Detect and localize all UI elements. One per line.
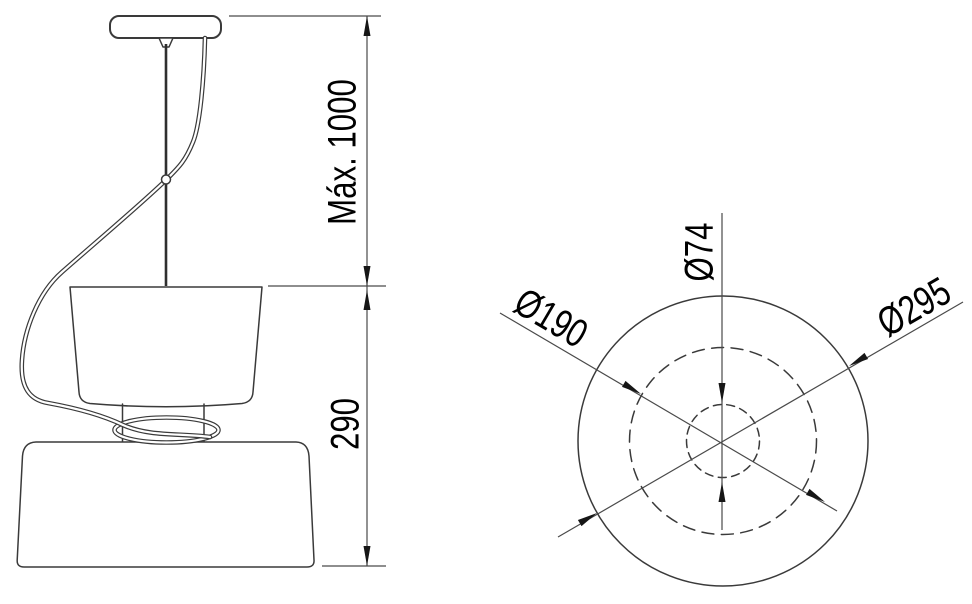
- arrow-down-bottom: [364, 546, 371, 566]
- arrow-down-middle: [364, 266, 371, 286]
- lower-shade: [17, 442, 314, 567]
- upper-shade: [70, 287, 262, 407]
- body-height-label: 290: [323, 398, 368, 450]
- side-view: Máx. 1000 290: [17, 16, 386, 567]
- plan-view-dimensions: Ø74 Ø190 Ø295: [500, 213, 963, 537]
- suspension-length-label: Máx. 1000: [320, 79, 365, 225]
- arrow-outer-lower-left: [578, 513, 597, 526]
- outer-diameter-label: Ø295: [870, 269, 958, 346]
- pendant-lamp-dimension-drawing: Máx. 1000 290 Ø74: [0, 0, 972, 604]
- arrow-up-top: [364, 16, 371, 36]
- arrow-middle-near: [622, 381, 641, 394]
- ceiling-canopy: [110, 16, 221, 38]
- arrow-outer-upper-right: [849, 353, 868, 366]
- arrow-middle-far: [806, 489, 825, 502]
- arrow-up-middle: [364, 290, 371, 310]
- arrow-inner-bottom: [719, 482, 726, 502]
- technical-drawing-page: Máx. 1000 290 Ø74: [0, 0, 972, 604]
- plan-view: Ø74 Ø190 Ø295: [500, 213, 963, 586]
- inner-diameter-label: Ø74: [677, 223, 722, 282]
- middle-diameter-label: Ø190: [507, 279, 595, 356]
- cable-rod-clip: [162, 175, 171, 184]
- arrow-inner-top: [719, 383, 726, 403]
